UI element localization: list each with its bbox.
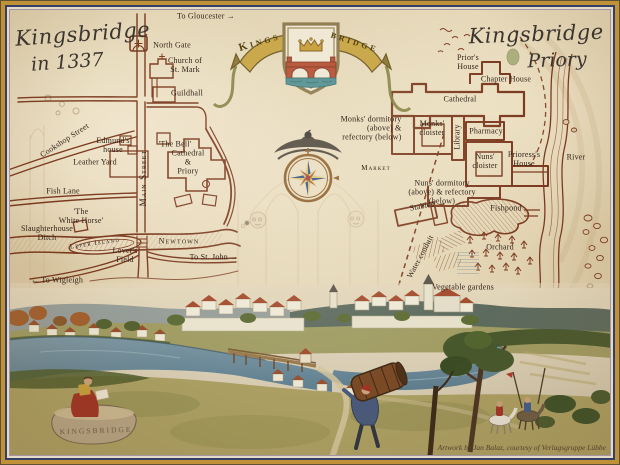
monks-cloister-label: Monks' cloister [419, 120, 444, 138]
fishpond-label: Fishpond [490, 205, 521, 214]
pharmacy-label: Pharmacy [469, 128, 503, 137]
chapter-house-label: Chapter House [481, 76, 531, 85]
vegetable-gardens-label: Vegetable gardens [432, 284, 494, 293]
water-conduit-label: Water conduit [406, 234, 436, 280]
river-label: River [567, 154, 586, 163]
priors-house-label: Prior's House [457, 54, 479, 72]
cathedral-label: Cathedral [444, 96, 477, 105]
kingsbridge-map: Kingsbridge in 1337 Kingsbridge Priory K… [0, 0, 620, 465]
stables-label: Stables [409, 200, 435, 213]
monks-dormitory-label: Monks' dormitory (above) & refectory (be… [341, 116, 402, 143]
market-label: Market [361, 165, 391, 173]
library-label: Library [454, 124, 463, 149]
prioresss-house-label: Prioress's House [508, 151, 540, 169]
orchard-label: Orchard [486, 244, 514, 253]
artwork-credit: Artwork by Jan Balaz, courtesy of Verlag… [286, 443, 606, 452]
priory-map-labels: Prior's HouseChapter HouseCathedralMonks… [0, 0, 620, 465]
nuns-cloister-label: Nuns' cloister [472, 153, 497, 171]
